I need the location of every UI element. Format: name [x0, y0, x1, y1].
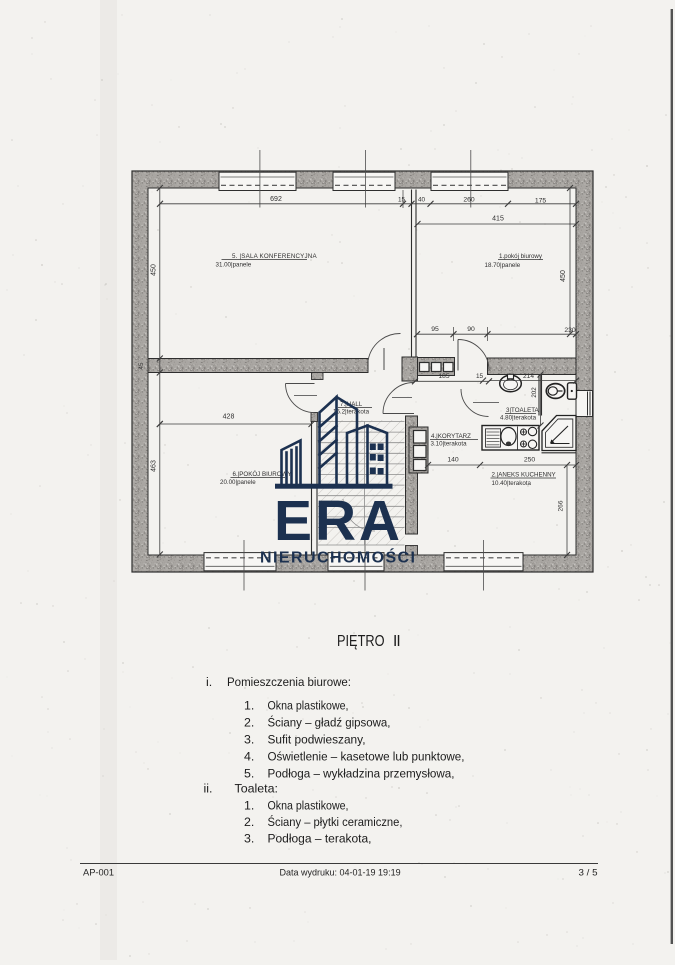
- svg-text:450: 450: [560, 270, 567, 282]
- svg-text:1.: 1.: [244, 798, 254, 812]
- svg-text:Okna plastikowe,: Okna plastikowe,: [268, 798, 349, 812]
- svg-text:450: 450: [151, 264, 158, 276]
- svg-text:Ściany – gładź gipsowa,: Ściany – gładź gipsowa,: [268, 715, 391, 730]
- svg-text:10.40|terakota: 10.40|terakota: [492, 480, 532, 487]
- svg-text:1.: 1.: [244, 699, 254, 713]
- svg-text:95: 95: [431, 326, 439, 333]
- svg-text:Sufit podwieszany,: Sufit podwieszany,: [268, 733, 366, 747]
- svg-text:428: 428: [223, 414, 235, 421]
- svg-text:2.: 2.: [244, 716, 254, 730]
- svg-text:15: 15: [476, 373, 484, 380]
- svg-text:214: 214: [523, 373, 534, 380]
- svg-text:5.: 5.: [232, 253, 237, 260]
- svg-text:Podłoga – terakota,: Podłoga – terakota,: [268, 832, 372, 846]
- svg-text:202: 202: [531, 387, 538, 398]
- svg-text:463: 463: [151, 460, 158, 472]
- svg-text:PIĘTRO: PIĘTRO: [337, 633, 385, 650]
- svg-text:18.70|panele: 18.70|panele: [485, 262, 521, 269]
- svg-text:3|TOALETA: 3|TOALETA: [506, 407, 540, 414]
- svg-text:20.00|panele: 20.00|panele: [220, 479, 256, 486]
- svg-text:415: 415: [492, 216, 504, 223]
- svg-text:Oświetlenie – kasetowe lub pun: Oświetlenie – kasetowe lub punktowe,: [268, 750, 465, 764]
- svg-text:ERA: ERA: [274, 489, 400, 553]
- svg-text:ii.: ii.: [204, 782, 213, 796]
- svg-text:2.: 2.: [244, 815, 254, 829]
- svg-text:4.: 4.: [244, 750, 254, 764]
- svg-text:3.: 3.: [244, 733, 254, 747]
- svg-text:250: 250: [524, 457, 536, 464]
- svg-text:45: 45: [138, 362, 145, 369]
- svg-text:Ściany – płytki ceramiczne,: Ściany – płytki ceramiczne,: [268, 814, 403, 829]
- svg-text:40: 40: [418, 197, 426, 204]
- svg-text:260: 260: [463, 197, 475, 204]
- svg-text:185: 185: [438, 373, 449, 380]
- svg-text:266: 266: [558, 500, 565, 511]
- svg-text:230: 230: [564, 327, 576, 334]
- svg-text:5.: 5.: [244, 767, 254, 781]
- svg-text:1.pokój biurowy: 1.pokój biurowy: [499, 253, 543, 260]
- svg-text:Podłoga – wykładzina przemysło: Podłoga – wykładzina przemysłowa,: [268, 767, 455, 781]
- svg-text:31.00|panele: 31.00|panele: [216, 262, 252, 269]
- svg-text:Data wydruku: 04-01-19 19:19: Data wydruku: 04-01-19 19:19: [280, 868, 401, 878]
- svg-text:Toaleta:: Toaleta:: [235, 782, 278, 796]
- svg-text:140: 140: [447, 457, 459, 464]
- svg-text:2.|ANEKS KUCHENNY: 2.|ANEKS KUCHENNY: [492, 472, 556, 479]
- svg-text:4.|KORYTARZ: 4.|KORYTARZ: [431, 433, 471, 440]
- svg-text:Okna plastikowe,: Okna plastikowe,: [268, 699, 349, 713]
- svg-text:|SALA KONFERENCYJNA: |SALA KONFERENCYJNA: [240, 253, 318, 260]
- svg-text:90: 90: [467, 326, 475, 333]
- svg-text:15.2|terakota: 15.2|terakota: [333, 409, 370, 416]
- svg-text:AP-001: AP-001: [83, 868, 114, 878]
- svg-text:4.80|terakota: 4.80|terakota: [500, 415, 537, 422]
- svg-text:3.10|terakota: 3.10|terakota: [431, 441, 468, 448]
- svg-text:3.: 3.: [244, 832, 254, 846]
- svg-text:692: 692: [270, 196, 282, 203]
- svg-text:NIERUCHOMOŚCI: NIERUCHOMOŚCI: [260, 548, 415, 567]
- svg-text:175: 175: [535, 198, 547, 205]
- svg-text:i.: i.: [206, 675, 212, 689]
- svg-text:Pomieszczenia biurowe:: Pomieszczenia biurowe:: [227, 675, 351, 689]
- svg-text:3 / 5: 3 / 5: [579, 868, 598, 878]
- svg-text:II: II: [393, 633, 401, 650]
- svg-text:15: 15: [398, 197, 406, 204]
